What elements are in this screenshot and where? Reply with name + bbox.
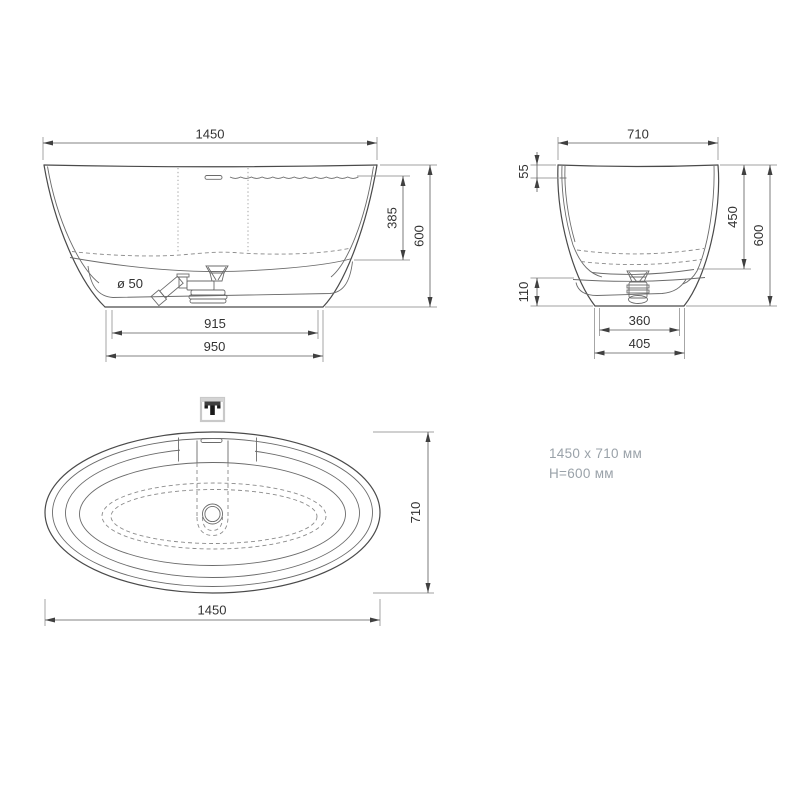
front-base-inner-dim: 915 <box>112 310 318 339</box>
side-top-edge <box>558 165 718 167</box>
top-view: 1450 710 <box>45 398 434 626</box>
top-length-dim: 1450 <box>45 599 380 626</box>
drain-outer <box>203 504 223 524</box>
drain-diameter-label: ø 50 <box>117 276 143 291</box>
front-view: ø 50 1450 385 600 915 <box>43 127 437 363</box>
basin-bottom-hidden <box>72 248 351 256</box>
side-inner-wall-left <box>562 166 602 277</box>
inner-wall-left <box>48 167 100 284</box>
side-drain-ring-1 <box>627 285 649 288</box>
tub-left-wall <box>44 165 105 307</box>
basin-bottom-outer <box>102 483 326 549</box>
drain-diameter-text: ø 50 <box>117 276 143 291</box>
side-view: 710 55 450 600 110 <box>516 127 777 360</box>
size-summary: 1450 x 710 мм H=600 мм <box>549 446 642 481</box>
trap-ring-1 <box>191 290 225 295</box>
tub-deck-edge <box>66 449 360 578</box>
summary-dimensions: 1450 x 710 мм <box>549 446 642 461</box>
faucet-icon <box>201 398 224 421</box>
overflow-slot <box>205 176 222 180</box>
drain-assembly-side <box>627 271 649 304</box>
side-basin-depth-dim: 450 <box>697 165 751 269</box>
side-basin-hidden-far <box>577 249 704 254</box>
side-rim-cavity <box>565 166 575 242</box>
front-base-inner-value: 915 <box>204 316 226 331</box>
side-width-value: 710 <box>627 127 649 142</box>
side-height-value: 600 <box>751 225 766 247</box>
drain-horizontal-pipe <box>187 281 214 290</box>
inner-wall-right <box>331 167 374 278</box>
top-length-value: 1450 <box>198 603 227 618</box>
side-base-value: 405 <box>629 336 651 351</box>
trap-ring-3 <box>190 299 226 303</box>
front-depth-value: 385 <box>385 207 400 229</box>
front-height-dim: 600 <box>325 165 437 307</box>
channel-hidden-end-outer <box>197 517 228 536</box>
side-drain-bottom <box>629 296 648 304</box>
side-base-inner-value: 360 <box>629 313 651 328</box>
tub-top-edge <box>44 165 377 167</box>
tub-basin-top <box>80 463 346 566</box>
front-base-value: 950 <box>204 339 226 354</box>
side-width-dim: 710 <box>558 127 718 161</box>
tub-right-wall <box>323 165 377 307</box>
side-base-height-value: 110 <box>516 282 531 303</box>
top-width-dim: 710 <box>373 432 434 593</box>
side-inner-wall-right <box>683 166 714 284</box>
side-basin-depth-value: 450 <box>725 206 740 228</box>
side-basin-hidden-near <box>581 260 701 265</box>
side-base-inner-dim: 360 <box>600 308 680 336</box>
apron-top-edge <box>70 258 352 272</box>
side-height-dim: 600 <box>686 165 777 306</box>
top-width-value: 710 <box>408 502 423 524</box>
tailpiece-flange <box>177 274 189 277</box>
waterline <box>230 177 358 178</box>
side-rim-value: 55 <box>516 164 531 178</box>
front-width-value: 1450 <box>196 127 225 142</box>
side-drain-ring-2 <box>627 290 649 293</box>
bathtub-technical-drawing: ø 50 1450 385 600 915 <box>0 0 800 800</box>
front-width-dim: 1450 <box>43 127 377 161</box>
drain-inner <box>205 506 220 521</box>
summary-height: H=600 мм <box>549 466 614 481</box>
side-rim-dim: 55 <box>516 152 559 192</box>
side-basin-bottom <box>592 270 694 275</box>
front-height-value: 600 <box>412 225 427 247</box>
deck-mask <box>180 442 255 462</box>
